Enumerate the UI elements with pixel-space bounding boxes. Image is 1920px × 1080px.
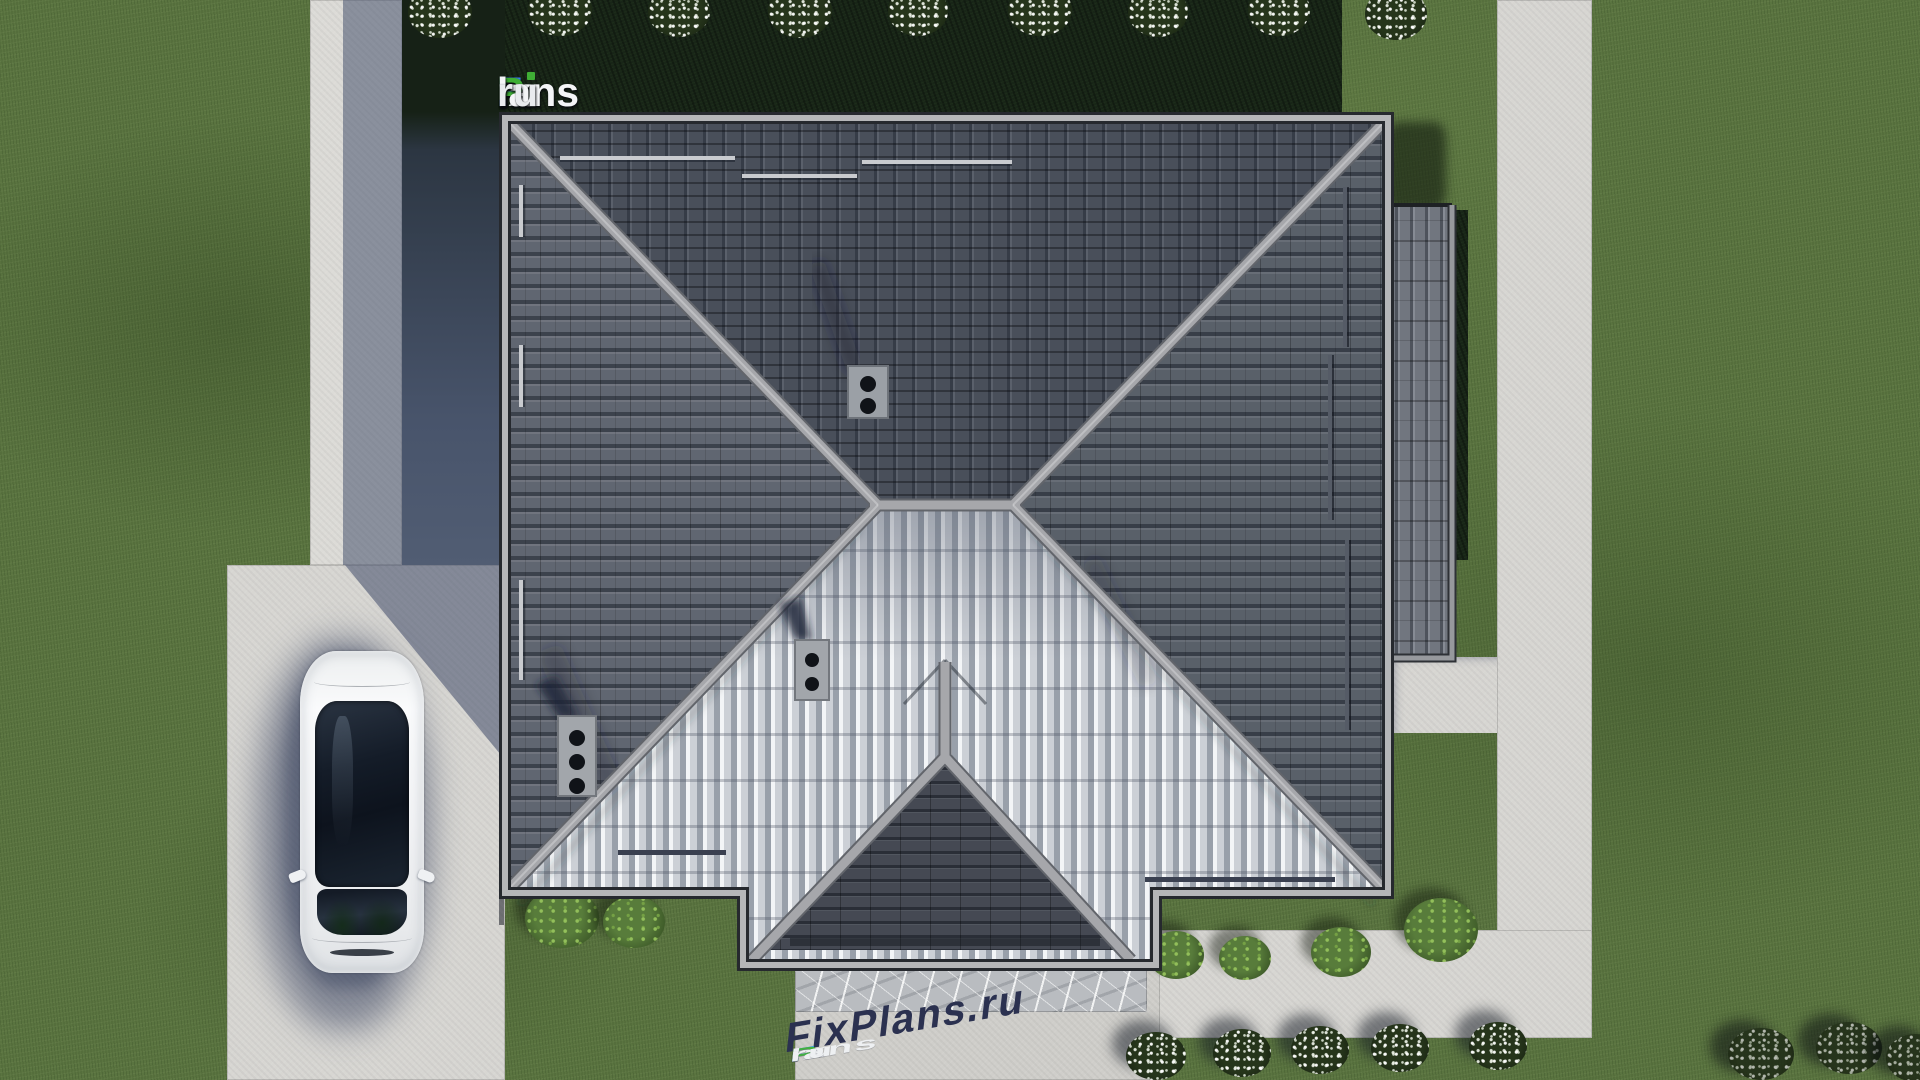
annex-roof	[1388, 203, 1452, 658]
logo-i-dot-green	[527, 72, 535, 80]
aerial-house-render: FixPlans.ru FixPlans.ru FixPlans.ru	[0, 0, 1920, 1080]
car-hood-seam	[312, 933, 412, 943]
white-sedan-car	[300, 651, 424, 973]
car-front-grille	[330, 949, 394, 956]
car-trunk-seam	[314, 677, 410, 687]
car-roof-glass	[315, 701, 409, 887]
chimney-north	[848, 366, 888, 418]
car-windshield	[317, 889, 407, 935]
